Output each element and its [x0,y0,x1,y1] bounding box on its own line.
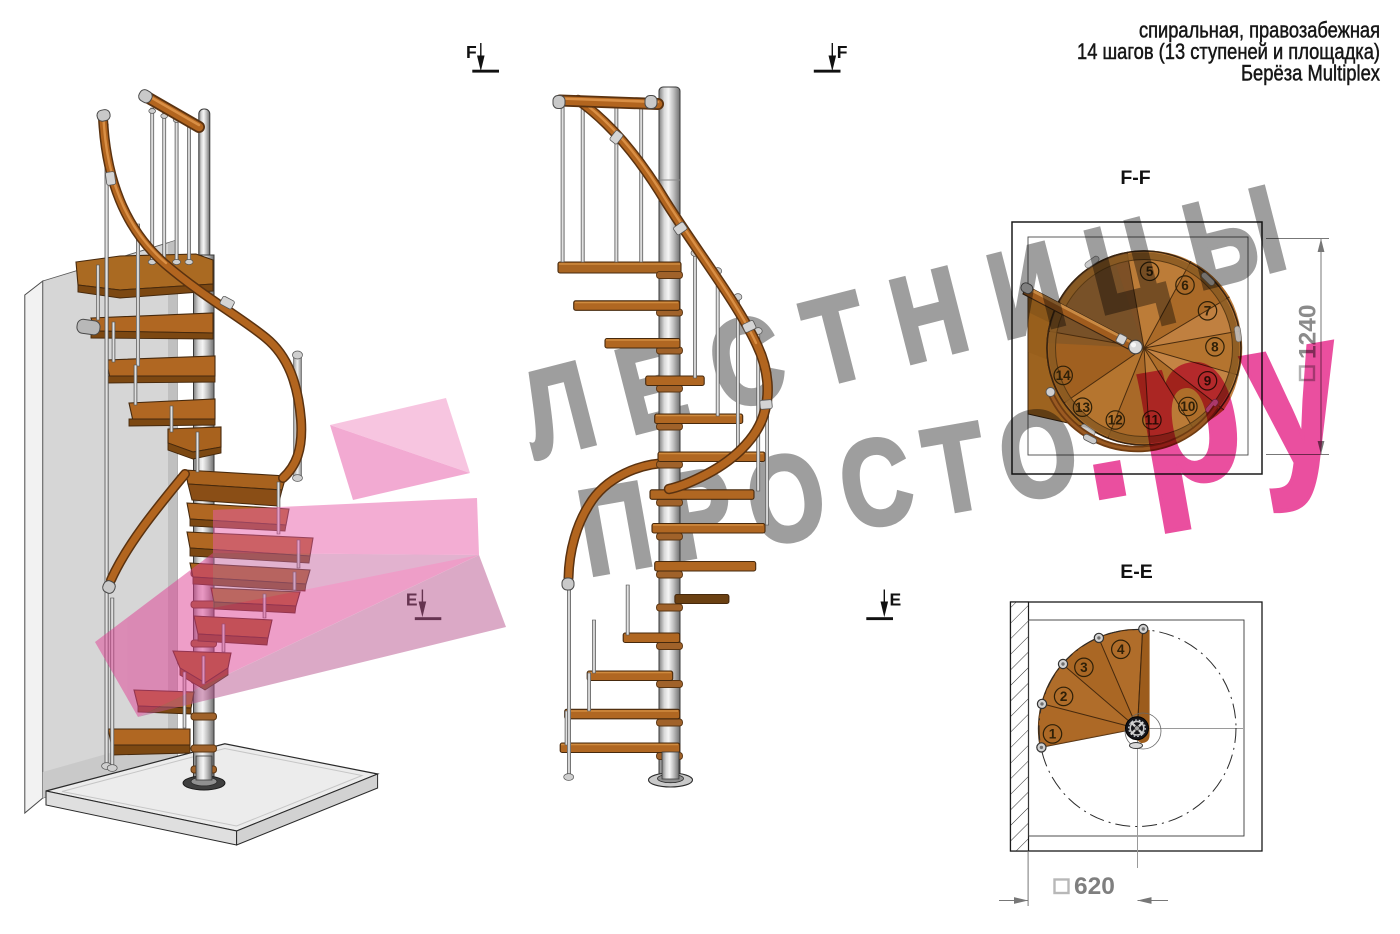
svg-text:2: 2 [1060,689,1068,704]
svg-text:3: 3 [1080,660,1088,675]
svg-text:Берёза Multiplex: Берёза Multiplex [1241,61,1380,86]
svg-text:4: 4 [1117,642,1125,657]
svg-text:E-E: E-E [1120,561,1153,583]
svg-text:1: 1 [1049,727,1057,742]
svg-text:F: F [837,42,848,62]
svg-text:F-F: F-F [1120,167,1150,189]
svg-text:E: E [890,590,902,610]
svg-text:.ру: .ру [1055,263,1361,546]
svg-text:F: F [466,42,477,62]
svg-text:620: 620 [1074,873,1115,900]
